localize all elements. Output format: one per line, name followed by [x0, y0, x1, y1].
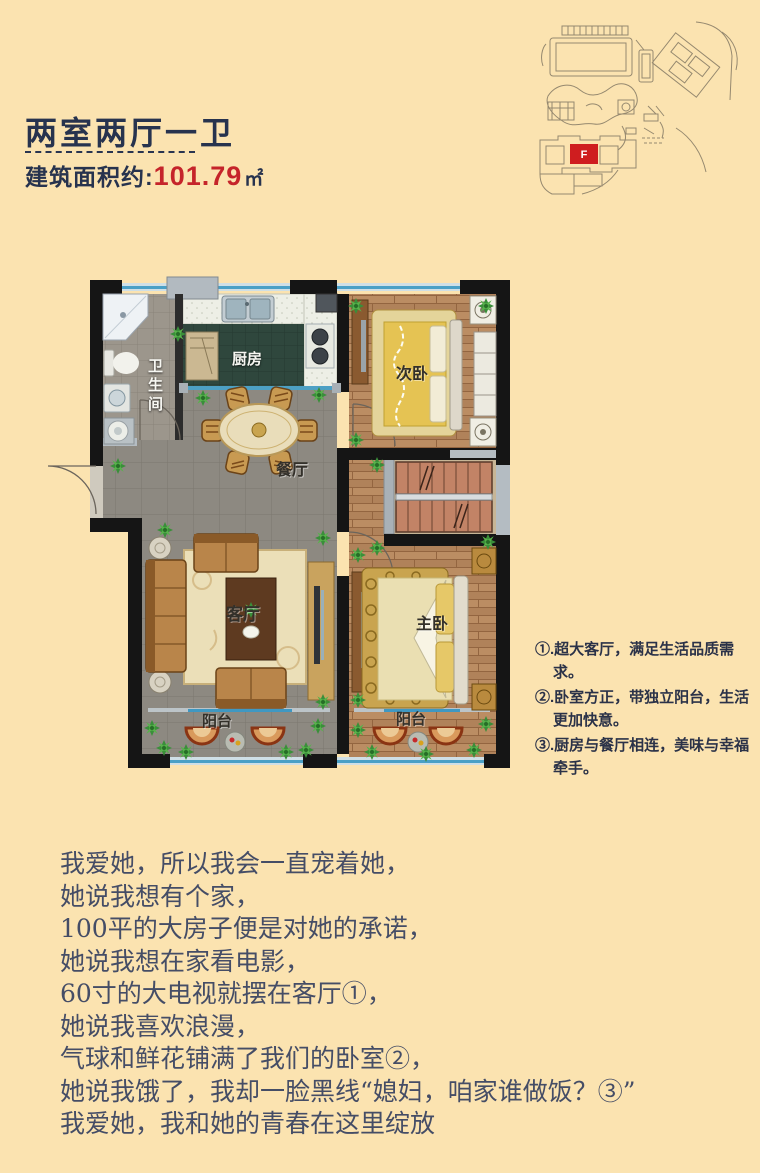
page-title: 两室两厅一卫 — [25, 108, 235, 154]
building-area: 建筑面积约:101.79㎡ — [25, 158, 264, 192]
second-bedroom-furniture — [352, 296, 496, 446]
stairwell — [384, 458, 496, 546]
selling-point: ③.厨房与餐厅相连，美味与幸福牵手。 — [535, 734, 751, 780]
poem-line: 她说我想有个家， — [60, 881, 720, 914]
poem-line: 100平的大房子便是对她的承诺， — [60, 913, 720, 946]
area-value: 101.79 — [154, 161, 243, 191]
floor-plan: 卫生间 厨房 餐厅 次卧 客厅 主卧 阳台 阳台 — [90, 280, 510, 775]
selling-point: ①.超大客厅，满足生活品质需求。 — [535, 638, 751, 684]
poem-line: 她说我饿了，我却一脸黑线“媳妇，咱家谁做饭？③” — [60, 1076, 720, 1109]
area-label: 建筑面积约: — [25, 164, 154, 190]
poem-line: 我爱她，我和她的青春在这里绽放 — [60, 1108, 720, 1141]
poem-line: 我爱她，所以我会一直宠着她， — [60, 848, 720, 881]
poem: 我爱她，所以我会一直宠着她， 她说我想有个家， 100平的大房子便是对她的承诺，… — [60, 848, 720, 1141]
poem-line: 她说我想在家看电影， — [60, 946, 720, 979]
selling-point: ②.卧室方正，带独立阳台，生活 更加快意。 — [535, 686, 751, 732]
poem-line: 她说我喜欢浪漫， — [60, 1011, 720, 1044]
poem-line: 气球和鲜花铺满了我们的卧室②， — [60, 1043, 720, 1076]
site-plan-drawing: F — [526, 10, 746, 200]
poem-line: 60寸的大电视就摆在客厅①， — [60, 978, 720, 1011]
site-plan: F — [526, 10, 746, 200]
flyer-page: 两室两厅一卫 建筑面积约:101.79㎡ — [0, 0, 760, 1173]
selling-points: ①.超大客厅，满足生活品质需求。 ②.卧室方正，带独立阳台，生活 更加快意。 ③… — [535, 638, 751, 782]
building-label: F — [581, 149, 588, 161]
title-divider — [25, 151, 195, 153]
floor-plan-drawing — [90, 280, 510, 775]
area-unit: ㎡ — [244, 169, 264, 190]
